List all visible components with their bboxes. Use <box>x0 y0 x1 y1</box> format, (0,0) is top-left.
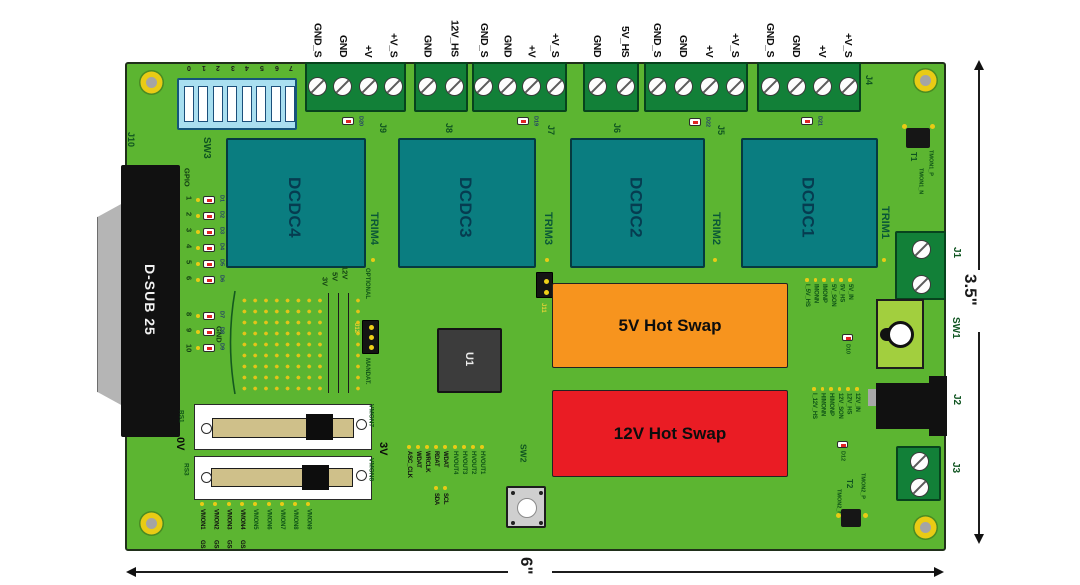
dot <box>462 445 466 449</box>
dip-position-number: 6 <box>275 64 279 71</box>
dot <box>829 387 833 391</box>
hvout-label: HVOUT1 <box>479 451 485 474</box>
bus-label: WRCLK <box>424 451 430 472</box>
dimension-line-vertical <box>978 70 980 270</box>
pad-dot <box>902 124 907 129</box>
led-label: D9 <box>218 343 224 350</box>
dot <box>713 258 717 262</box>
slider-knob <box>302 465 329 490</box>
led-d1 <box>203 196 215 204</box>
screw-terminal <box>761 77 780 96</box>
sense-label: 12V_SON <box>837 393 843 419</box>
led-d20 <box>342 117 354 125</box>
connector-ref: J9 <box>378 123 387 133</box>
screw-terminal <box>787 77 806 96</box>
bus-label: WDAT <box>442 451 448 468</box>
header-pin <box>369 335 374 340</box>
dot <box>196 198 200 202</box>
pin-label: +V <box>704 45 715 57</box>
vmon-label: VMON5 <box>252 509 258 529</box>
sense-label: 5V_HS <box>838 284 844 302</box>
led-d2 <box>203 212 215 220</box>
mounting-hole <box>920 522 931 533</box>
bus-label: RDAT <box>433 451 439 466</box>
vmon-label: VMON6 <box>266 509 272 529</box>
dot <box>196 278 200 282</box>
dot <box>812 387 816 391</box>
dcdc-label: DCDC3 <box>457 177 474 238</box>
sense-label: IMONN <box>813 284 819 303</box>
rs1-signal-label: VMON7 <box>367 404 374 427</box>
hot-swap-5v-block: 5V Hot Swap <box>552 283 788 368</box>
screw-terminal <box>418 77 437 96</box>
dot <box>814 278 818 282</box>
dot <box>838 387 842 391</box>
led-d3 <box>203 228 215 236</box>
dot <box>434 486 438 490</box>
connector-ref: J6 <box>612 123 621 133</box>
slider-knob <box>306 414 333 440</box>
pin-label: GND_S <box>478 23 489 57</box>
pad-dot <box>930 124 935 129</box>
connector-ref: J8 <box>444 123 453 133</box>
dip-position-number: 1 <box>202 64 206 71</box>
dot <box>196 214 200 218</box>
sense-label: HIMONN <box>820 393 826 416</box>
screw-terminal <box>445 77 464 96</box>
screw-terminal <box>726 77 745 96</box>
dot <box>805 278 809 282</box>
led-d4 <box>203 244 215 252</box>
pin-label: 12V_HS <box>449 20 460 57</box>
trim-label: TRIM3 <box>542 212 553 245</box>
pin-label: GND <box>791 35 802 57</box>
dot <box>196 230 200 234</box>
bus-label: ASC_CLK <box>406 451 412 478</box>
dot <box>425 445 429 449</box>
dcdc-label: DCDC4 <box>286 177 303 238</box>
rs3-ref: RS3 <box>182 463 189 476</box>
screw-terminal <box>616 77 635 96</box>
screw-terminal <box>839 77 858 96</box>
dip-position-number: 7 <box>289 64 293 71</box>
dip-switch-lever <box>271 86 281 122</box>
screw-terminal <box>359 77 378 96</box>
dcdc-label: DCDC1 <box>800 177 817 238</box>
slider-rs1 <box>194 404 372 450</box>
led-d7 <box>203 312 215 320</box>
dimension-line-vertical <box>978 332 980 534</box>
led-label: D20 <box>357 116 363 126</box>
pcb-board-diagram: D-SUB 25 J10 SW3 GPIO GND OPTIONAL J12 M… <box>0 0 1080 585</box>
t2-component <box>841 509 861 527</box>
pad-dot <box>863 513 868 518</box>
led-label: D21 <box>816 116 822 126</box>
sense-label: I_12V_HS <box>811 393 817 419</box>
rs3-signal-label: VMON8 <box>367 458 374 481</box>
dip-switch-lever <box>242 86 252 122</box>
header-pin <box>369 325 374 330</box>
pad-dot <box>836 513 841 518</box>
t1-component <box>906 128 930 148</box>
sense-label: HIMONP <box>828 393 834 416</box>
led-label: D1 <box>218 195 224 202</box>
connector-ref: J7 <box>546 125 555 135</box>
bus-alt-label: SCL <box>442 493 448 504</box>
j12-mandatory-label: MANDAT. <box>364 358 370 385</box>
hvout-label: HVOUT3 <box>461 451 467 474</box>
led-label: D19 <box>532 116 538 126</box>
power-jack-j2-barrel <box>929 376 947 436</box>
screw-terminal <box>588 77 607 96</box>
vmon-gs-label: GS <box>226 540 232 548</box>
tmon2-p-label: TMON2_P <box>859 473 865 499</box>
led-d19 <box>517 117 529 125</box>
pin-label: GND_S <box>652 23 663 57</box>
arrow-up-icon <box>974 60 984 70</box>
dot <box>280 502 284 506</box>
led-d9 <box>203 344 215 352</box>
screw-terminal <box>308 77 327 96</box>
gpio-number: 5 <box>185 260 193 264</box>
dot <box>471 445 475 449</box>
pin-label: +V_S <box>843 33 854 57</box>
dot <box>371 258 375 262</box>
pin-label: GND <box>592 35 603 57</box>
dot <box>267 502 271 506</box>
t2-ref: T2 <box>845 479 853 488</box>
led-d10 <box>842 334 853 341</box>
screw-terminal <box>546 77 565 96</box>
led-label: D5 <box>218 259 224 266</box>
dip-position-number: 2 <box>216 64 220 71</box>
trim-label: TRIM1 <box>879 206 890 239</box>
dot <box>227 502 231 506</box>
dip-switch-lever <box>227 86 237 122</box>
j11-ref: J11 <box>540 303 546 313</box>
rail-line <box>338 293 340 393</box>
led-d21 <box>801 117 813 125</box>
bus-label: WDAT <box>415 451 421 468</box>
arrow-left-icon <box>126 567 136 577</box>
gpio-number: 10 <box>185 344 193 352</box>
gpio-number: 1 <box>185 196 193 200</box>
vmon-label: VMON1 <box>199 509 205 529</box>
hvout-label: HVOUT2 <box>470 451 476 474</box>
bus-alt-label: SDA <box>433 493 439 505</box>
led-label: D7 <box>218 311 224 318</box>
dot <box>196 314 200 318</box>
vmon-label: VMON4 <box>239 509 245 529</box>
mounting-hole <box>146 518 157 529</box>
pin-label: GND_S <box>312 23 323 57</box>
slider-min-label: 0V <box>174 437 185 450</box>
dot <box>416 445 420 449</box>
mounting-hole <box>920 75 931 86</box>
dot <box>831 278 835 282</box>
dot <box>882 258 886 262</box>
slider-screw <box>201 472 212 483</box>
dot <box>196 262 200 266</box>
vmon-gs-label: GS <box>212 540 218 548</box>
dip-position-number: 4 <box>245 64 249 71</box>
rail-label: 12V <box>341 266 349 279</box>
mounting-hole <box>146 77 157 88</box>
dsub-shell <box>97 203 123 406</box>
vmon-gs-label: GS <box>199 540 205 548</box>
button-cap <box>517 498 537 518</box>
led-d10-label: D10 <box>844 344 850 354</box>
pin-label: +V_S <box>730 33 741 57</box>
dot <box>200 502 204 506</box>
dimension-line-horizontal <box>552 571 936 573</box>
pin-label: GND <box>678 35 689 57</box>
dot <box>453 445 457 449</box>
trim-label: TRIM2 <box>710 212 721 245</box>
tmon2-n-label: TMON2_N <box>835 489 841 515</box>
dot <box>822 278 826 282</box>
dimension-line-horizontal <box>134 571 508 573</box>
proto-grid <box>237 293 325 395</box>
dot <box>196 330 200 334</box>
dip-switch-lever <box>256 86 266 122</box>
dip-position-number: 0 <box>187 64 191 71</box>
header-pin <box>544 290 549 295</box>
led-d12-label: D12 <box>839 451 845 461</box>
gpio-number: 4 <box>185 244 193 248</box>
screw-terminal <box>498 77 517 96</box>
slider-max-label: 3V <box>377 442 388 455</box>
vmon-label: VMON7 <box>279 509 285 529</box>
dot <box>407 445 411 449</box>
dot <box>196 346 200 350</box>
led-label: D6 <box>218 275 224 282</box>
led-label: D4 <box>218 243 224 250</box>
hot-swap-5v-label: 5V Hot Swap <box>619 316 722 336</box>
pin-label: +V <box>526 45 537 57</box>
trim-label: TRIM4 <box>368 212 379 245</box>
dot <box>434 445 438 449</box>
rail-label: 5V <box>331 272 339 281</box>
dot <box>848 278 852 282</box>
dsub-label: D-SUB 25 <box>143 264 157 336</box>
dcdc-label: DCDC2 <box>628 177 645 238</box>
header-pin <box>544 279 549 284</box>
tmon1-p-label: TMON1_P <box>927 150 933 176</box>
led-d12 <box>837 441 848 448</box>
rs1-ref: RS1 <box>177 410 184 423</box>
rotary-switch-sw1 <box>876 299 924 369</box>
screw-terminal <box>700 77 719 96</box>
led-d22 <box>689 118 701 126</box>
gpio-label: GPIO <box>183 168 191 187</box>
slider-screw <box>201 423 212 434</box>
pin-label: +V <box>363 45 374 57</box>
board-height-dimension: 3.5" <box>962 274 979 306</box>
dot <box>240 502 244 506</box>
header-pin <box>369 345 374 350</box>
sense-label: IMONP <box>821 284 827 303</box>
j3-ref: J3 <box>950 462 960 473</box>
vmon-label: VMON8 <box>292 509 298 529</box>
sw3-ref: SW3 <box>201 137 211 159</box>
led-d8 <box>203 328 215 336</box>
rail-line <box>348 293 350 393</box>
board-width-dimension: 6" <box>518 557 535 575</box>
slider-screw <box>356 470 367 481</box>
dot <box>855 387 859 391</box>
dot <box>545 258 549 262</box>
sense-label: 12V_IN <box>854 393 860 412</box>
arrow-right-icon <box>934 567 944 577</box>
dip-switch-lever <box>184 86 194 122</box>
pin-label: GND <box>337 35 348 57</box>
push-button-sw2 <box>506 486 546 528</box>
sense-label: 5V_IN <box>847 284 853 300</box>
dot <box>443 445 447 449</box>
connector-ref: J4 <box>864 75 873 85</box>
dot <box>196 246 200 250</box>
led-label: D22 <box>704 117 710 127</box>
pin-label: +V <box>817 45 828 57</box>
sw1-knob <box>887 321 914 348</box>
hvout-label: HVOUT4 <box>452 451 458 474</box>
screw-terminal <box>910 452 929 471</box>
dip-switch-lever <box>213 86 223 122</box>
vmon-label: VMON2 <box>212 509 218 529</box>
dot <box>846 387 850 391</box>
screw-terminal <box>912 240 931 259</box>
led-d5 <box>203 260 215 268</box>
dip-switch-lever <box>198 86 208 122</box>
pin-label: +V_S <box>550 33 561 57</box>
screw-terminal <box>910 478 929 497</box>
sw2-ref: SW2 <box>519 444 528 462</box>
screw-terminal <box>648 77 667 96</box>
screw-terminal <box>674 77 693 96</box>
dsub-ref: J10 <box>126 132 135 147</box>
gpio-number: 6 <box>185 276 193 280</box>
hot-swap-12v-block: 12V Hot Swap <box>552 390 788 477</box>
led-label: D3 <box>218 227 224 234</box>
ic-u1-label: U1 <box>463 352 474 366</box>
j1-ref: J1 <box>951 247 961 258</box>
pin-label: +V_S <box>388 33 399 57</box>
pin-label: GND <box>502 35 513 57</box>
dip-position-number: 5 <box>260 64 264 71</box>
gpio-number: 2 <box>185 212 193 216</box>
dot <box>821 387 825 391</box>
led-label: D8 <box>218 327 224 334</box>
gnd-bracket <box>225 289 236 396</box>
proto-rail-dots <box>351 293 360 395</box>
rail-line <box>328 293 330 393</box>
j12-ref: J12 <box>353 323 359 333</box>
power-jack-j2 <box>876 383 929 429</box>
dip-switch-lever <box>285 86 295 122</box>
sw1-ref: SW1 <box>950 317 960 339</box>
hot-swap-12v-label: 12V Hot Swap <box>614 424 726 444</box>
screw-terminal <box>813 77 832 96</box>
pin-label: GND <box>422 35 433 57</box>
tmon1-n-label: TMON1_N <box>917 168 923 194</box>
gpio-number: 3 <box>185 228 193 232</box>
sense-label: 12V_HS <box>845 393 851 414</box>
slider-slot <box>211 468 353 487</box>
gpio-number: 8 <box>185 312 193 316</box>
screw-terminal <box>384 77 403 96</box>
rail-label: 3V <box>321 277 329 286</box>
dot <box>480 445 484 449</box>
pin-label: 5V_HS <box>620 26 631 57</box>
slider-screw <box>356 419 367 430</box>
j12-optional-label: OPTIONAL <box>364 268 370 299</box>
dot <box>839 278 843 282</box>
screw-terminal <box>522 77 541 96</box>
connector-ref: J5 <box>716 125 725 135</box>
vmon-gs-label: GS <box>239 540 245 548</box>
led-d6 <box>203 276 215 284</box>
led-label: D2 <box>218 211 224 218</box>
sense-label: 5V_SON <box>830 284 836 306</box>
vmon-label: VMON3 <box>226 509 232 529</box>
slider-rs3 <box>194 456 372 500</box>
arrow-down-icon <box>974 534 984 544</box>
j2-ref: J2 <box>951 394 961 405</box>
screw-terminal <box>912 275 931 294</box>
dip-position-number: 3 <box>231 64 235 71</box>
gpio-number: 9 <box>185 328 193 332</box>
vmon-label: VMON9 <box>305 509 311 529</box>
t1-ref: T1 <box>909 152 917 161</box>
dot <box>443 486 447 490</box>
pin-label: GND_S <box>765 23 776 57</box>
sense-label: I_5V_HS <box>804 284 810 307</box>
